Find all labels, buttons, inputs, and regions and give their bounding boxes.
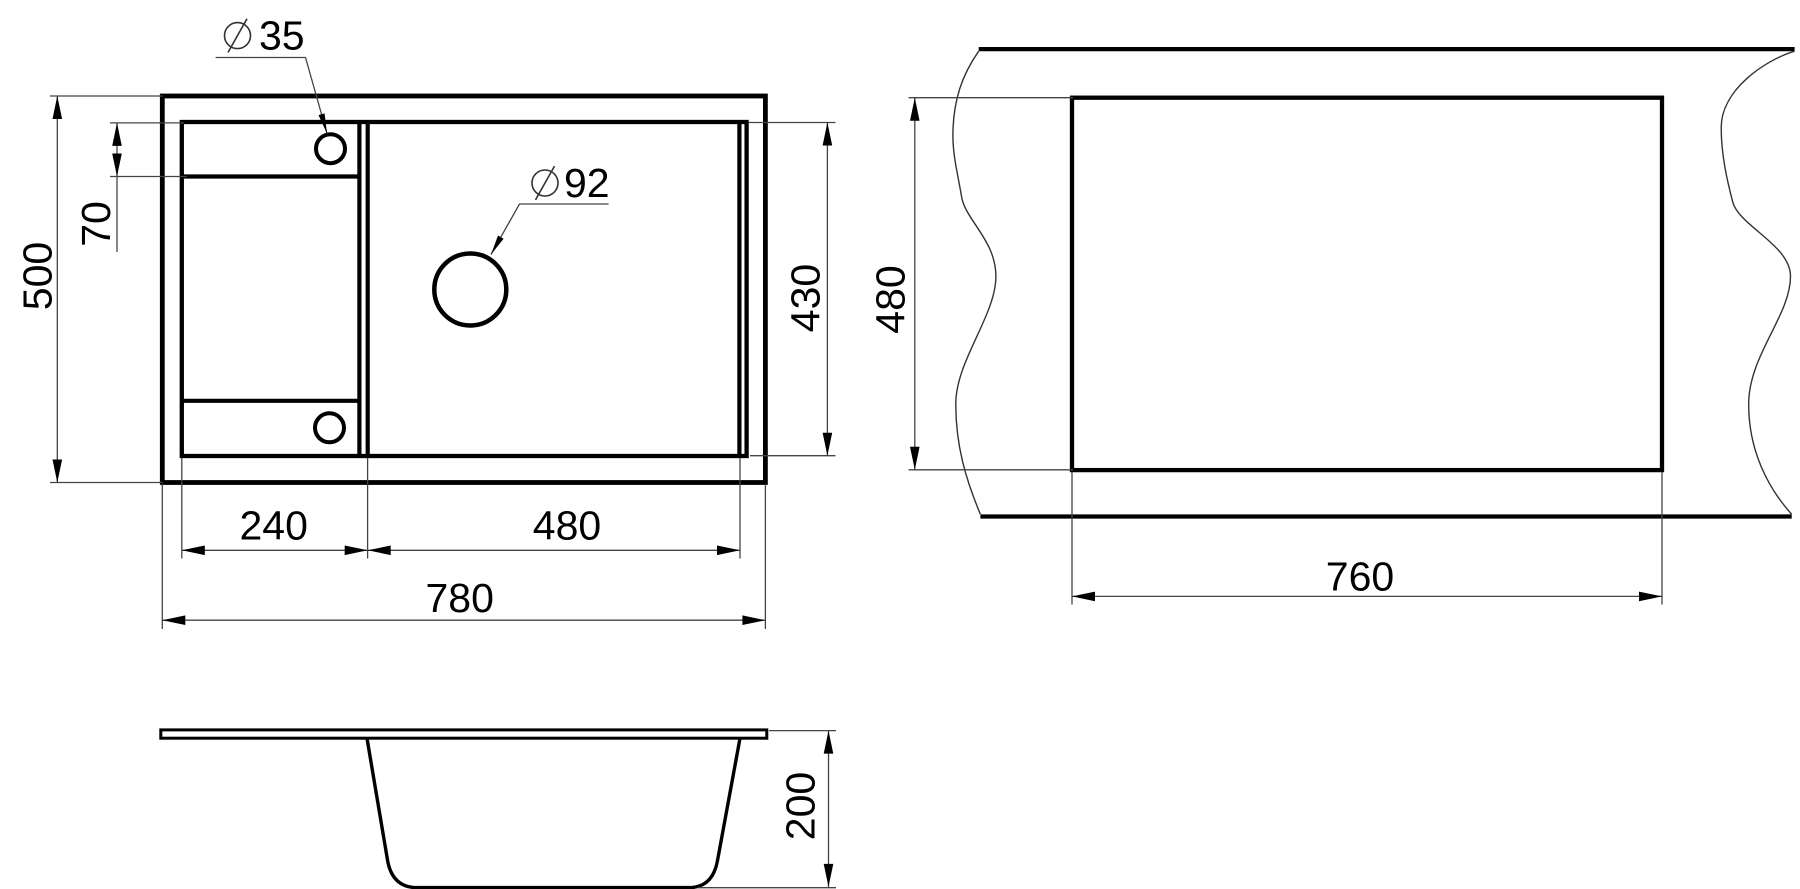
- svg-text:480: 480: [533, 503, 601, 549]
- svg-text:240: 240: [239, 503, 307, 549]
- svg-text:480: 480: [867, 265, 913, 333]
- svg-text:780: 780: [425, 575, 493, 621]
- svg-text:430: 430: [782, 264, 828, 332]
- svg-text:35: 35: [259, 12, 305, 58]
- svg-text:92: 92: [564, 160, 610, 206]
- svg-text:500: 500: [14, 242, 60, 310]
- svg-text:760: 760: [1326, 554, 1394, 600]
- svg-text:70: 70: [73, 201, 119, 247]
- svg-text:200: 200: [777, 772, 823, 840]
